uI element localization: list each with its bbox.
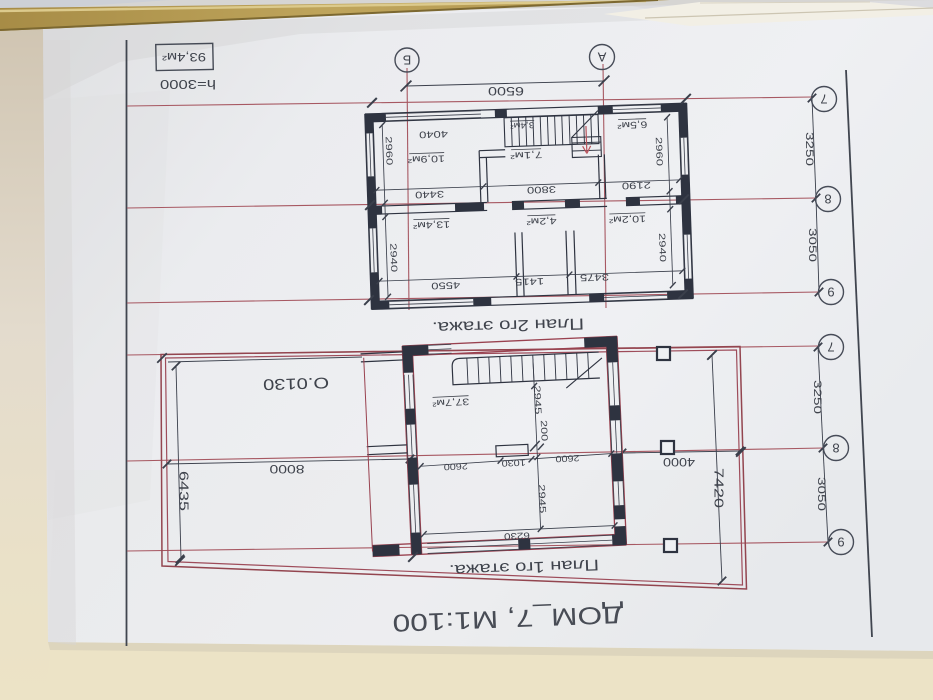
- svg-text:3475: 3475: [580, 271, 609, 283]
- svg-text:9: 9: [837, 535, 844, 550]
- svg-text:7420: 7420: [712, 468, 727, 508]
- svg-text:2945: 2945: [537, 484, 548, 513]
- svg-text:9: 9: [827, 285, 834, 300]
- svg-text:7: 7: [827, 340, 834, 355]
- svg-text:2940: 2940: [657, 233, 668, 262]
- svg-text:6500: 6500: [488, 84, 524, 96]
- svg-text:6230: 6230: [504, 530, 530, 541]
- svg-text:2945: 2945: [532, 385, 543, 414]
- svg-text:3050: 3050: [806, 228, 818, 262]
- svg-text:О.0130: О.0130: [262, 373, 329, 392]
- svg-text:6435: 6435: [177, 471, 192, 511]
- svg-text:Б: Б: [403, 53, 412, 68]
- svg-text:2960: 2960: [384, 136, 395, 165]
- svg-text:8: 8: [824, 192, 831, 207]
- svg-text:13,4м²: 13,4м²: [413, 218, 450, 230]
- svg-text:6,5м²: 6,5м²: [617, 118, 647, 130]
- svg-text:3250: 3250: [803, 132, 815, 166]
- svg-text:3800: 3800: [527, 183, 556, 195]
- svg-text:1415: 1415: [515, 275, 544, 287]
- svg-text:3050: 3050: [815, 477, 827, 511]
- svg-text:7: 7: [820, 92, 827, 107]
- svg-text:А: А: [597, 50, 606, 65]
- svg-text:8000: 8000: [269, 462, 304, 476]
- svg-text:200: 200: [539, 420, 550, 441]
- svg-text:3250: 3250: [811, 380, 823, 414]
- svg-text:7,1м²: 7,1м²: [510, 149, 542, 161]
- svg-text:8: 8: [832, 441, 839, 456]
- svg-text:3440: 3440: [415, 188, 444, 200]
- svg-text:4,2м²: 4,2м²: [526, 215, 556, 227]
- svg-text:2600: 2600: [444, 461, 468, 472]
- svg-text:2600: 2600: [555, 453, 579, 464]
- svg-text:h=3000: h=3000: [160, 77, 216, 91]
- svg-text:2190: 2190: [622, 179, 651, 191]
- svg-text:93,4м²: 93,4м²: [162, 50, 206, 62]
- svg-text:4550: 4550: [431, 279, 460, 291]
- svg-text:3,4м²: 3,4м²: [510, 120, 535, 131]
- svg-text:4000: 4000: [663, 455, 695, 467]
- svg-text:2960: 2960: [654, 137, 665, 166]
- svg-text:2940: 2940: [388, 243, 399, 272]
- svg-text:1030: 1030: [501, 457, 525, 468]
- svg-text:10,9м²: 10,9м²: [408, 152, 445, 164]
- svg-text:4040: 4040: [419, 128, 448, 140]
- svg-text:10,2м²: 10,2м²: [609, 213, 646, 225]
